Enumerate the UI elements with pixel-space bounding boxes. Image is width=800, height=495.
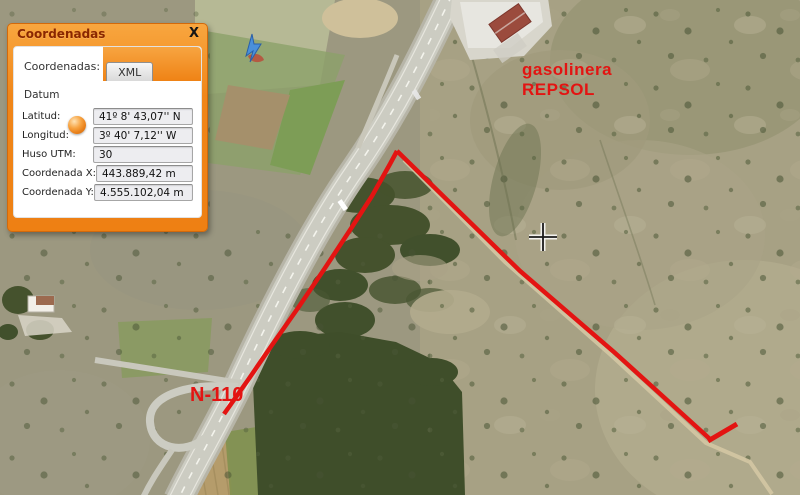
coordinate-y-row: Coordenada Y: 4.555.102,04 m [22, 184, 193, 201]
coordinate-x-label: Coordenada X: [22, 168, 96, 179]
longitude-field[interactable]: 3º 40' 7,12'' W [93, 127, 193, 144]
latitude-field[interactable]: 41º 8' 43,07'' N [93, 108, 193, 125]
tab-strip-filler: XML [103, 47, 201, 81]
datum-label: Datum [24, 89, 193, 101]
map-label-n110: N-110 [190, 384, 243, 406]
tab-xml[interactable]: XML [106, 62, 153, 81]
coordinates-window: Coordenadas X Coordenadas: XML Datum Lat… [7, 23, 208, 232]
latitude-row: Latitud: 41º 8' 43,07'' N [22, 108, 193, 125]
orange-sphere-icon [68, 116, 86, 134]
close-button[interactable]: X [189, 27, 199, 40]
app-window: gasolinera REPSOL N-110 Coordenadas X Co… [0, 0, 800, 495]
map-label-repsol: REPSOL [522, 80, 595, 99]
window-title: Coordenadas [17, 27, 105, 41]
coordinate-x-row: Coordenada X: 443.889,42 m [22, 165, 193, 182]
tab-strip: Coordenadas: XML [14, 47, 201, 81]
utm-zone-field[interactable]: 30 [93, 146, 193, 163]
coordinate-y-label: Coordenada Y: [22, 187, 94, 198]
coordinates-form: Datum Latitud: 41º 8' 43,07'' N Longitud… [14, 81, 201, 201]
coordinate-y-field[interactable]: 4.555.102,04 m [94, 184, 193, 201]
map-label-gasolinera: gasolinera [522, 60, 612, 79]
utm-zone-row: Huso UTM: 30 [22, 146, 193, 163]
longitude-row: Longitud: 3º 40' 7,12'' W [22, 127, 193, 144]
window-body: Coordenadas: XML Datum Latitud: 41º 8' 4… [13, 46, 202, 218]
coordinate-x-field[interactable]: 443.889,42 m [96, 165, 193, 182]
tab-coordenadas: Coordenadas: [14, 47, 103, 81]
window-titlebar[interactable]: Coordenadas X [8, 24, 207, 42]
utm-zone-label: Huso UTM: [22, 149, 93, 160]
